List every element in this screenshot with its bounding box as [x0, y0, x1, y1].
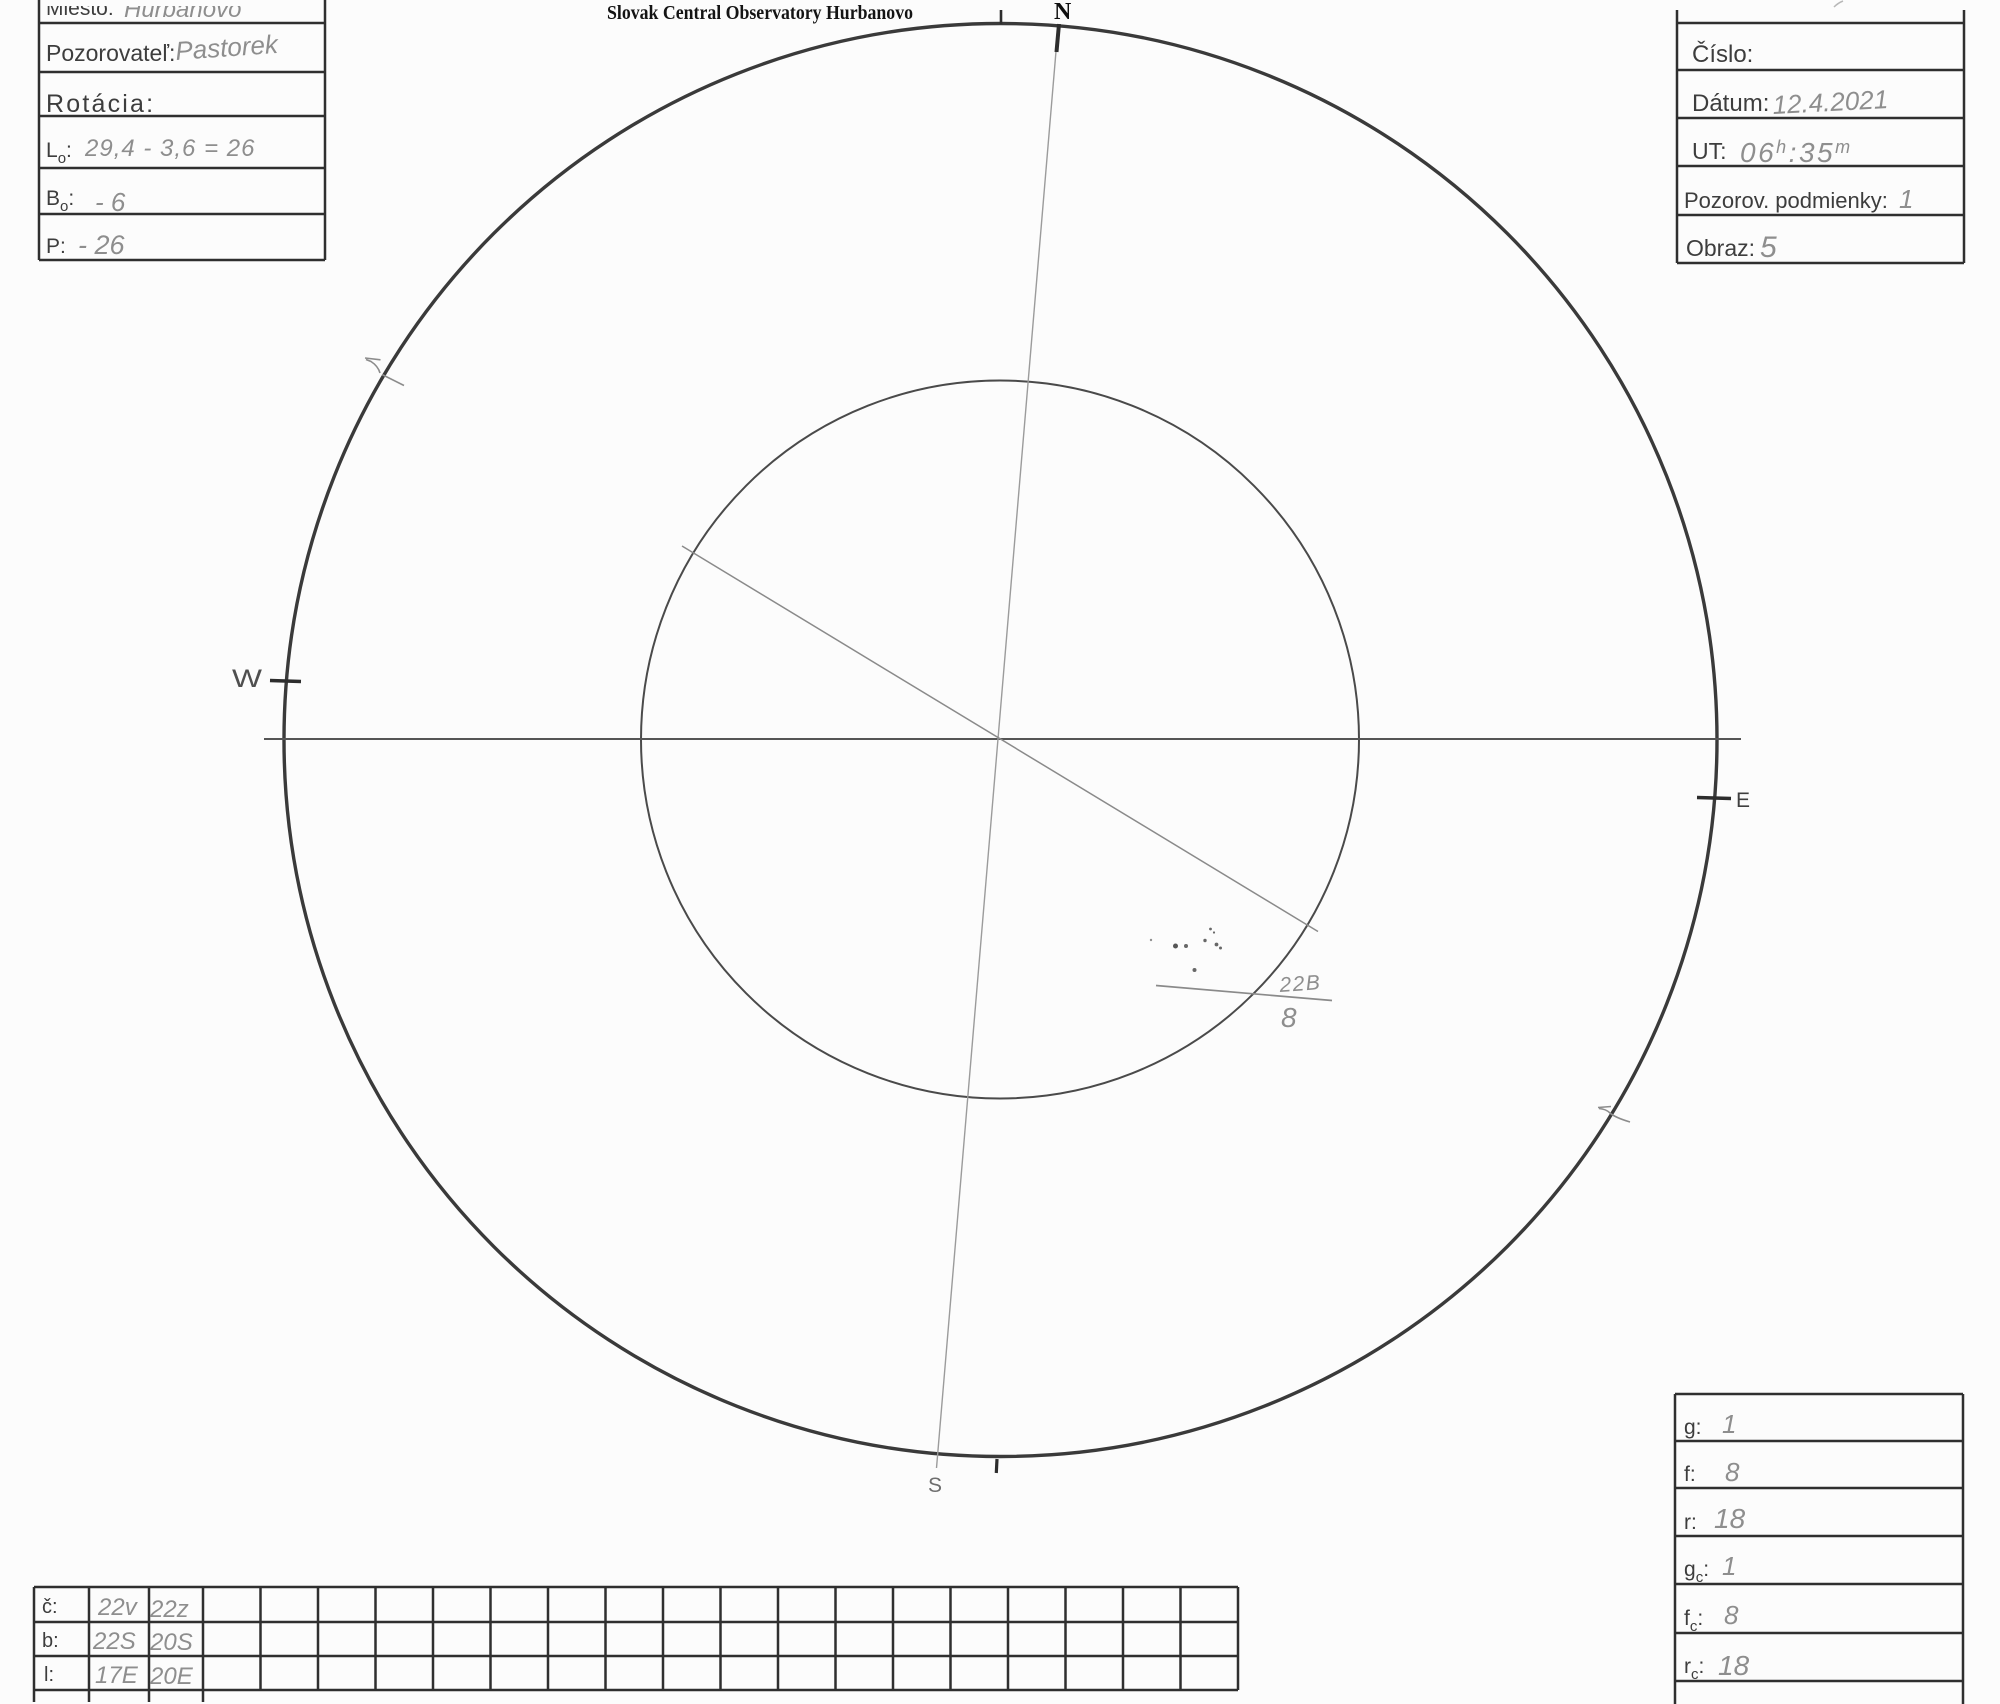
svg-text:Slovak Central Observatory Hur: Slovak Central Observatory Hurbanovo [607, 3, 913, 24]
svg-text:8: 8 [1281, 1002, 1297, 1033]
svg-text:1: 1 [1722, 1409, 1736, 1439]
svg-text:29,4 - 3,6 = 26: 29,4 - 3,6 = 26 [84, 135, 255, 162]
svg-text:b:: b: [42, 1630, 59, 1652]
svg-text:5: 5 [1760, 231, 1777, 264]
svg-text:20S: 20S [149, 1629, 193, 1656]
svg-text:W: W [232, 665, 262, 693]
svg-text:č:: č: [42, 1596, 58, 1618]
svg-text:Číslo:: Číslo: [1692, 40, 1753, 68]
svg-text:N: N [1054, 0, 1072, 25]
svg-text:1: 1 [1899, 184, 1913, 214]
svg-text:f:: f: [1684, 1463, 1696, 1486]
svg-text:18: 18 [1718, 1650, 1750, 1681]
svg-text:18: 18 [1714, 1503, 1746, 1534]
svg-text:20E: 20E [149, 1663, 194, 1690]
svg-text:S: S [928, 1474, 942, 1497]
svg-text:g:: g: [1684, 1416, 1702, 1439]
svg-text:Dátum:: Dátum: [1692, 90, 1769, 117]
svg-text:1: 1 [1722, 1551, 1736, 1581]
svg-text:22v: 22v [97, 1594, 139, 1621]
svg-text:r:: r: [1684, 1511, 1697, 1534]
svg-text:Rotácia:: Rotácia: [46, 90, 155, 118]
svg-text:- 26: - 26 [78, 230, 126, 260]
svg-text:UT:: UT: [1692, 138, 1727, 164]
svg-text:22S: 22S [92, 1628, 136, 1655]
svg-text:E: E [1736, 789, 1750, 812]
svg-text:Obraz:: Obraz: [1686, 235, 1755, 261]
svg-text:8: 8 [1724, 1600, 1739, 1630]
svg-text:- 6: - 6 [95, 187, 126, 217]
svg-text:12.4.2021: 12.4.2021 [1772, 84, 1889, 120]
svg-text:22z: 22z [149, 1596, 189, 1623]
svg-text:8: 8 [1725, 1457, 1740, 1487]
svg-text:17E: 17E [95, 1662, 139, 1689]
svg-text:l:: l: [44, 1664, 54, 1686]
svg-text:P:: P: [46, 235, 66, 258]
svg-text:22B: 22B [1278, 971, 1322, 997]
svg-text:Pozorovateľ:: Pozorovateľ: [46, 40, 175, 66]
svg-text:Pozorov. podmienky:: Pozorov. podmienky: [1684, 188, 1888, 213]
